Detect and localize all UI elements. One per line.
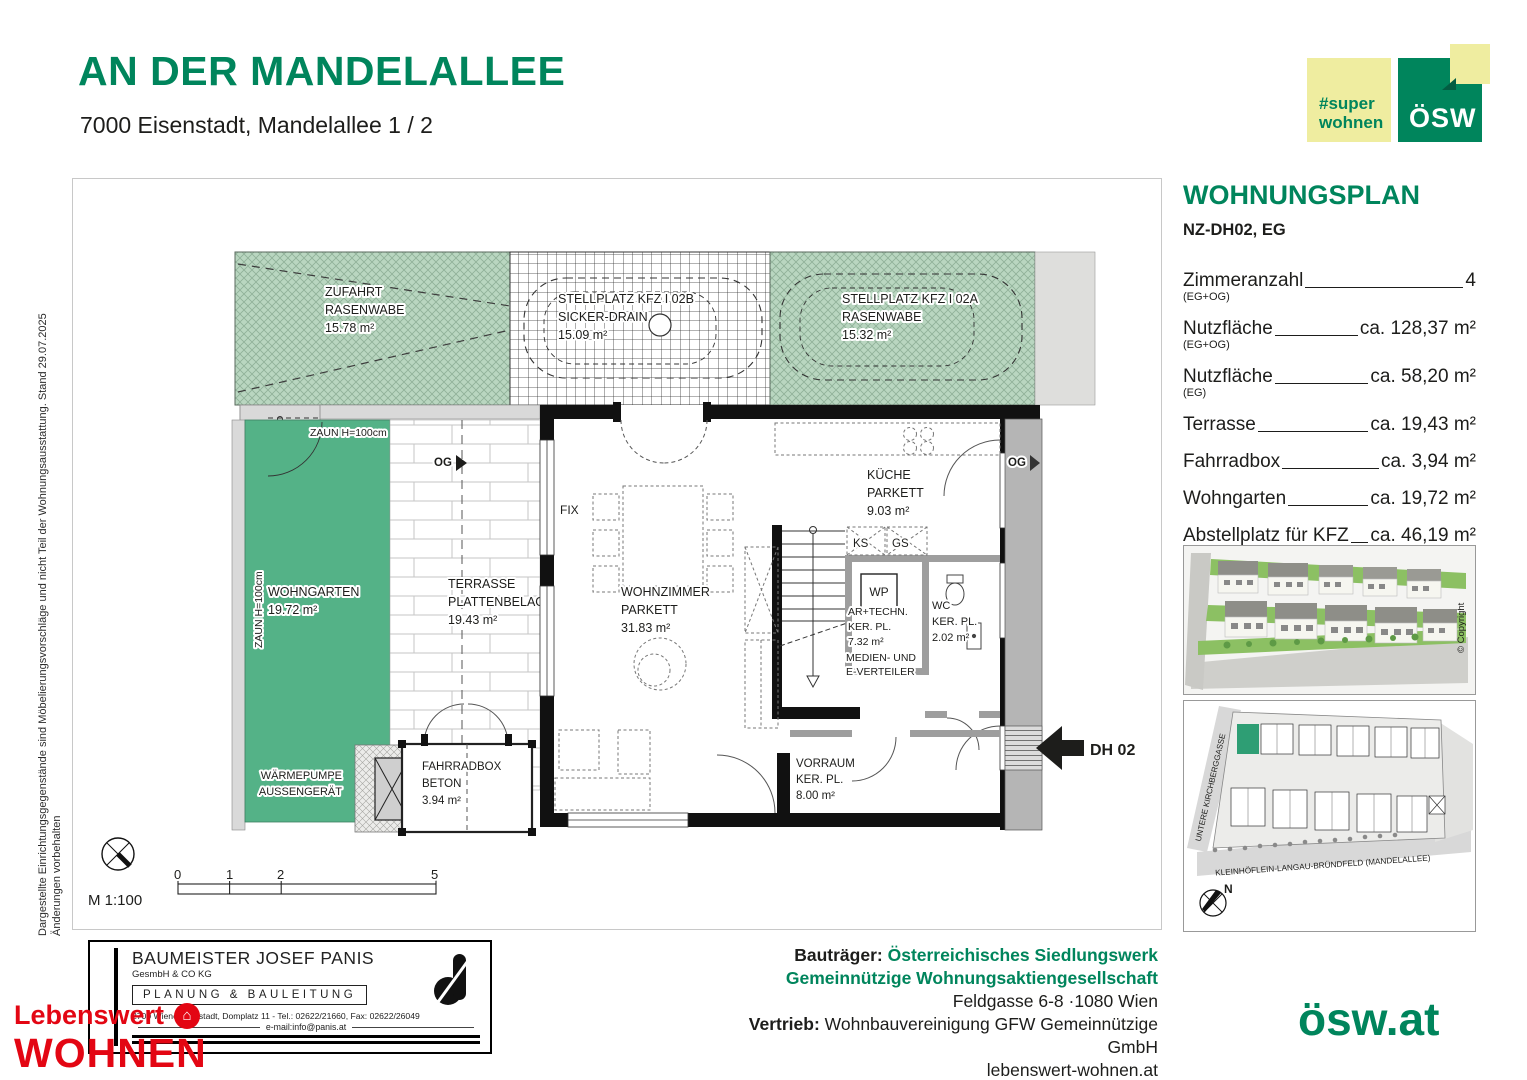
panel-title: WOHNUNGSPLAN bbox=[1183, 180, 1476, 211]
page-subtitle: 7000 Eisenstadt, Mandelallee 1 / 2 bbox=[80, 112, 433, 139]
vertrieb-name: Wohnbauvereinigung GFW Gemeinnützige Gmb… bbox=[825, 1014, 1158, 1057]
site-plan: UNTERE KIRCHBERGGASSE KLEINHÖFLEIN-LANGA… bbox=[1183, 700, 1476, 932]
svg-text:31.83 m²: 31.83 m² bbox=[621, 621, 670, 635]
zaun-top-label: ZAUN H=100cm bbox=[310, 427, 387, 439]
neighbor-strip: OG bbox=[1005, 419, 1042, 830]
unit-code: NZ-DH02, EG bbox=[1183, 221, 1476, 240]
dh02-arrow-icon bbox=[1036, 726, 1084, 770]
scale-bar: 0 1 2 5 bbox=[174, 867, 438, 894]
wp-label: WP bbox=[869, 585, 888, 599]
drain-icon bbox=[649, 314, 671, 336]
terrasse-label: TERRASSE bbox=[448, 577, 515, 591]
svg-text:KER. PL.: KER. PL. bbox=[796, 774, 843, 786]
spec-row: Nutzflächeca. 58,20 m² (EG) bbox=[1183, 366, 1476, 399]
dh02-label: DH 02 bbox=[1090, 742, 1135, 759]
svg-text:7.32 m²: 7.32 m² bbox=[848, 636, 884, 648]
vertrieb-label: Vertrieb: bbox=[749, 1014, 820, 1034]
svg-text:15.09 m²: 15.09 m² bbox=[558, 328, 607, 342]
spec-row: Terrasseca. 19,43 m² bbox=[1183, 414, 1476, 436]
svg-text:KER. PL.: KER. PL. bbox=[848, 621, 891, 633]
website-link: lebenswert-wohnen.at bbox=[740, 1059, 1158, 1080]
svg-text:15.78 m²: 15.78 m² bbox=[325, 321, 374, 335]
plan-compass-icon bbox=[102, 838, 134, 870]
spec-row: Zimmeranzahl4 (EG+OG) bbox=[1183, 270, 1476, 303]
lebenswert-logo: Lebenswert ⌂ WOHNEN bbox=[14, 1002, 207, 1074]
osw-logo-fold bbox=[1450, 44, 1490, 84]
svg-text:SICKER-DRAIN: SICKER-DRAIN bbox=[558, 310, 648, 324]
lebenswert-line2: WOHNEN bbox=[14, 1033, 207, 1074]
og-marker-terrasse: OG bbox=[434, 457, 452, 469]
architect-email: e-mail:info@panis.at bbox=[266, 1022, 346, 1032]
page-title: AN DER MANDELALLEE bbox=[78, 48, 565, 95]
copyright-note: © Copyright bbox=[1456, 602, 1467, 653]
terrasse-area: TERRASSE PLATTENBELAG 19.43 m² OG bbox=[390, 420, 545, 790]
aerial-render: © Copyright bbox=[1183, 545, 1476, 695]
svg-text:PLATTENBELAG: PLATTENBELAG bbox=[448, 595, 545, 609]
stellplatz-02b: STELLPLATZ KFZ I 02B SICKER-DRAIN 15.09 … bbox=[510, 252, 770, 405]
svg-text:5: 5 bbox=[431, 867, 438, 882]
disclaimer-note: Dargestellte Einrichtungsgegenstände sin… bbox=[36, 278, 64, 936]
disclaimer-line1: Dargestellte Einrichtungsgegenstände sin… bbox=[36, 278, 50, 936]
fix-label: FIX bbox=[560, 503, 579, 517]
osw-logo: ÖSW bbox=[1398, 58, 1482, 142]
info-panel: WOHNUNGSPLAN NZ-DH02, EG Zimmeranzahl4 (… bbox=[1183, 180, 1476, 573]
svg-text:PARKETT: PARKETT bbox=[867, 486, 924, 500]
floor-plan: ZUFAHRT RASENWABE 15.78 m² STELLPLATZ KF… bbox=[72, 178, 1162, 930]
zufahrt-area: ZUFAHRT RASENWABE 15.78 m² bbox=[235, 252, 510, 405]
svg-text:E-VERTEILER: E-VERTEILER bbox=[846, 666, 915, 678]
neighbor-drive bbox=[1035, 252, 1095, 405]
stellplatz-02b-label: STELLPLATZ KFZ I 02B bbox=[558, 292, 694, 306]
houses-top-row bbox=[1261, 724, 1439, 758]
og-marker-right: OG bbox=[1008, 457, 1026, 469]
osw-logo-text: ÖSW bbox=[1409, 103, 1477, 134]
svg-text:15.32 m²: 15.32 m² bbox=[842, 328, 891, 342]
svg-text:RASENWABE: RASENWABE bbox=[325, 303, 404, 317]
osw-logo-fold-crease bbox=[1442, 78, 1456, 90]
svg-text:AUSSENGERÄT: AUSSENGERÄT bbox=[259, 786, 342, 798]
svg-text:KER. PL.: KER. PL. bbox=[932, 616, 977, 628]
spec-row: Fahrradboxca. 3,94 m² bbox=[1183, 451, 1476, 473]
flyer-page: AN DER MANDELALLEE 7000 Eisenstadt, Mand… bbox=[0, 0, 1527, 1080]
fahrradbox-label: FAHRRADBOX bbox=[422, 761, 502, 773]
ks-label: KS bbox=[853, 538, 869, 550]
stellplatz-02a: STELLPLATZ KFZ I 02A RASENWABE 15.32 m² bbox=[770, 252, 1035, 405]
north-label: N bbox=[1224, 882, 1233, 896]
wc-label: WC bbox=[932, 600, 950, 612]
spec-row: Nutzflächeca. 128,37 m² (EG+OG) bbox=[1183, 318, 1476, 351]
spec-row: Wohngartenca. 19,72 m² bbox=[1183, 488, 1476, 510]
jp-monogram-icon bbox=[432, 950, 478, 1008]
kueche-label: KÜCHE bbox=[867, 468, 911, 482]
svg-text:0: 0 bbox=[174, 867, 181, 882]
lebenswert-emblem-icon: ⌂ bbox=[174, 1003, 200, 1029]
scale-label: M 1:100 bbox=[88, 892, 142, 909]
zaun-left-label: ZAUN H=100cm bbox=[253, 571, 265, 648]
svg-text:2.02 m²: 2.02 m² bbox=[932, 632, 970, 644]
lebenswert-line1: Lebenswert bbox=[14, 1002, 164, 1029]
superwohnen-line1: #super bbox=[1319, 94, 1391, 113]
vorraum-label: VORRAUM bbox=[796, 758, 855, 770]
architect-legal: GesmbH & CO KG bbox=[132, 969, 480, 980]
stellplatz-02a-label: STELLPLATZ KFZ I 02A bbox=[842, 292, 979, 306]
gs-label: GS bbox=[892, 538, 909, 550]
architect-name: BAUMEISTER JOSEF PANIS bbox=[132, 948, 480, 969]
waermepumpe-label: WÄRMEPUMPE bbox=[261, 770, 342, 782]
disclaimer-line2: Änderungen vorbehalten bbox=[50, 278, 64, 936]
superwohnen-logo: #super wohnen bbox=[1307, 58, 1391, 142]
superwohnen-line2: wohnen bbox=[1319, 113, 1391, 132]
svg-text:19.72 m²: 19.72 m² bbox=[268, 603, 317, 617]
svg-text:8.00 m²: 8.00 m² bbox=[796, 790, 835, 802]
wohnzimmer-label: WOHNZIMMER bbox=[621, 585, 710, 599]
technik-label: AR+TECHN. bbox=[848, 606, 908, 618]
zufahrt-label: ZUFAHRT bbox=[325, 285, 383, 299]
bautraeger-label: Bauträger: bbox=[794, 945, 883, 965]
bautraeger-name: Österreichisches Siedlungswerk bbox=[888, 945, 1158, 965]
svg-text:2: 2 bbox=[277, 867, 284, 882]
bautraeger-address: Feldgasse 6-8 ·1080 Wien bbox=[740, 990, 1158, 1013]
svg-text:3.94 m²: 3.94 m² bbox=[422, 795, 461, 807]
svg-text:RASENWABE: RASENWABE bbox=[842, 310, 921, 324]
medien-label: MEDIEN- UND bbox=[846, 652, 916, 664]
svg-text:1: 1 bbox=[226, 867, 233, 882]
svg-text:BETON: BETON bbox=[422, 778, 461, 790]
wohngarten-label: WOHNGARTEN bbox=[268, 585, 359, 599]
svg-text:9.03 m²: 9.03 m² bbox=[867, 504, 909, 518]
svg-text:PARKETT: PARKETT bbox=[621, 603, 678, 617]
developer-info: Bauträger: Österreichisches Siedlungswer… bbox=[740, 944, 1158, 1080]
osw-url: ösw.at bbox=[1298, 992, 1439, 1046]
bautraeger-name2: Gemeinnützige Wohnungsaktiengesellschaft bbox=[740, 967, 1158, 990]
highlighted-unit bbox=[1237, 724, 1259, 754]
svg-text:19.43 m²: 19.43 m² bbox=[448, 613, 497, 627]
